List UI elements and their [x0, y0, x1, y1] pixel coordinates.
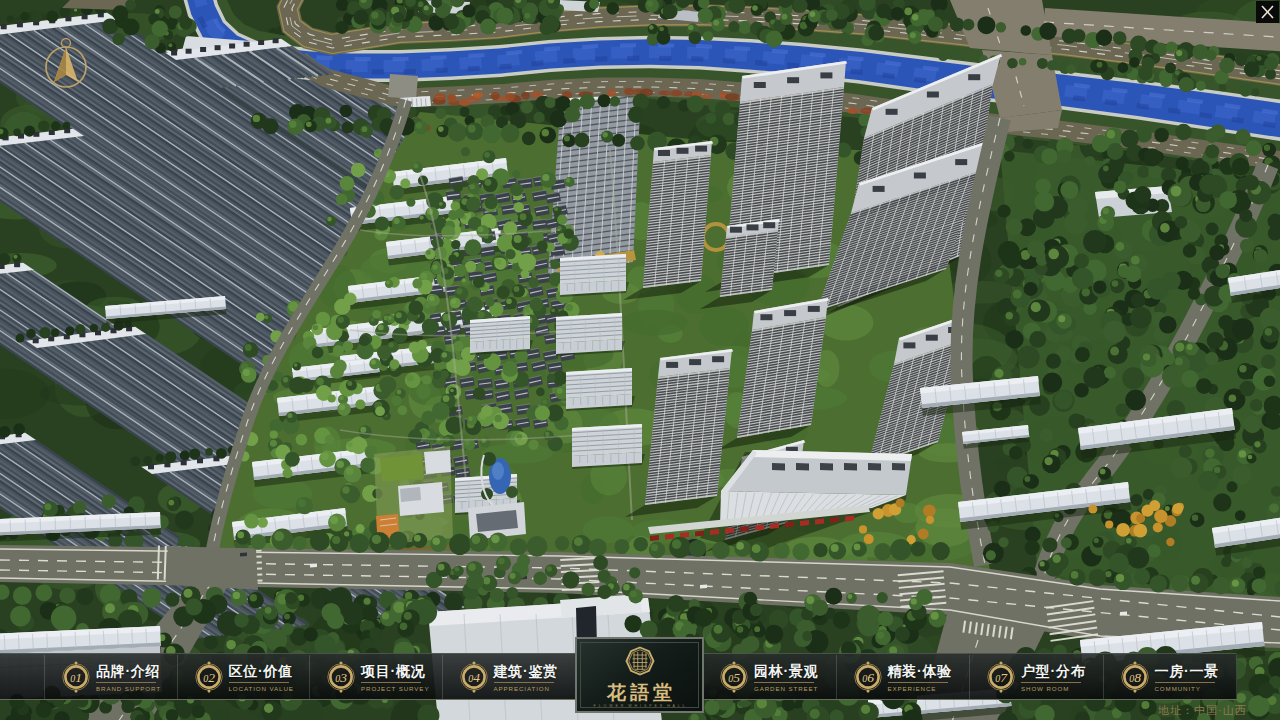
svg-text:03: 03: [335, 670, 347, 685]
svg-text:05: 05: [728, 670, 740, 685]
svg-text:01: 01: [70, 670, 82, 685]
svg-text:02: 02: [203, 670, 215, 685]
svg-text:07: 07: [995, 670, 1008, 685]
svg-text:04: 04: [468, 670, 480, 685]
svg-text:08: 08: [1129, 670, 1141, 685]
svg-text:06: 06: [862, 670, 874, 685]
